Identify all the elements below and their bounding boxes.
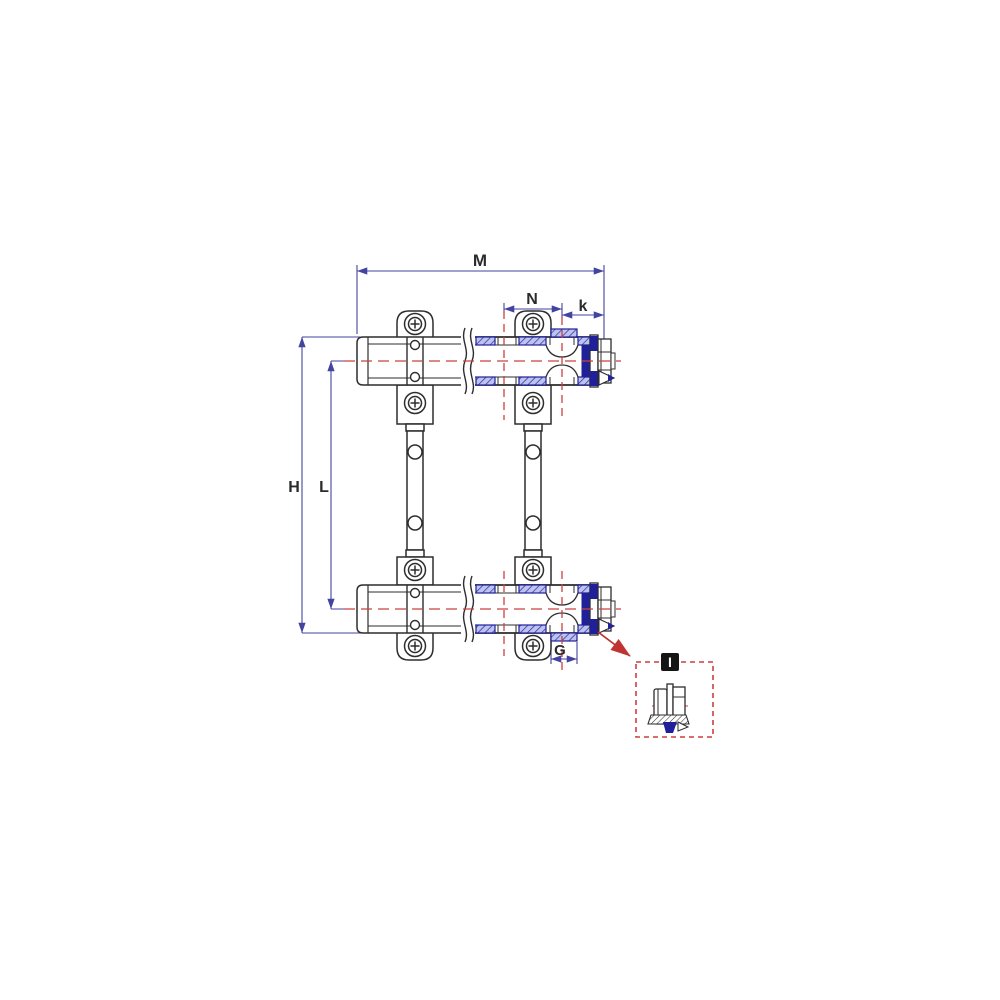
- strap-hole: [411, 373, 420, 382]
- port-boss: [551, 329, 577, 337]
- phillips-screw-icon: [523, 393, 544, 414]
- rail-hole: [408, 516, 422, 530]
- bracket-joint: [524, 424, 542, 431]
- label-M: M: [473, 251, 487, 270]
- detail-fitting: [648, 684, 691, 733]
- strap-hole: [411, 589, 420, 598]
- phillips-screw-icon: [405, 314, 426, 335]
- label-detail-I: I: [668, 654, 672, 670]
- bracket-joint: [524, 550, 542, 557]
- bracket-joint: [406, 550, 424, 557]
- phillips-screw-icon: [405, 560, 426, 581]
- label-L: L: [319, 479, 329, 496]
- phillips-screw-icon: [523, 636, 544, 657]
- bracket-joint: [406, 424, 424, 431]
- dimension-H: [302, 337, 362, 633]
- fitting-seal: [663, 722, 677, 733]
- phillips-screw-icon: [405, 636, 426, 657]
- label-N: N: [526, 291, 538, 308]
- strap-hole: [411, 621, 420, 630]
- port-boss: [551, 633, 577, 641]
- strap-hole: [411, 341, 420, 350]
- phillips-screw-icon: [523, 314, 544, 335]
- drawing-page: M N k H L G I: [0, 0, 1000, 1000]
- label-k: k: [579, 298, 588, 315]
- dimension-M: [357, 265, 604, 339]
- rail-hole: [526, 516, 540, 530]
- rail-hole: [526, 445, 540, 459]
- break-lines: [461, 328, 475, 642]
- label-G: G: [554, 642, 566, 659]
- detail-callout: [598, 632, 713, 737]
- rail-hole: [408, 445, 422, 459]
- label-H: H: [288, 479, 300, 496]
- phillips-screw-icon: [523, 560, 544, 581]
- callout-arrow: [598, 632, 630, 656]
- manifold-technical-drawing: M N k H L G I: [0, 0, 1000, 1000]
- dimension-L: [331, 361, 350, 609]
- phillips-screw-icon: [405, 393, 426, 414]
